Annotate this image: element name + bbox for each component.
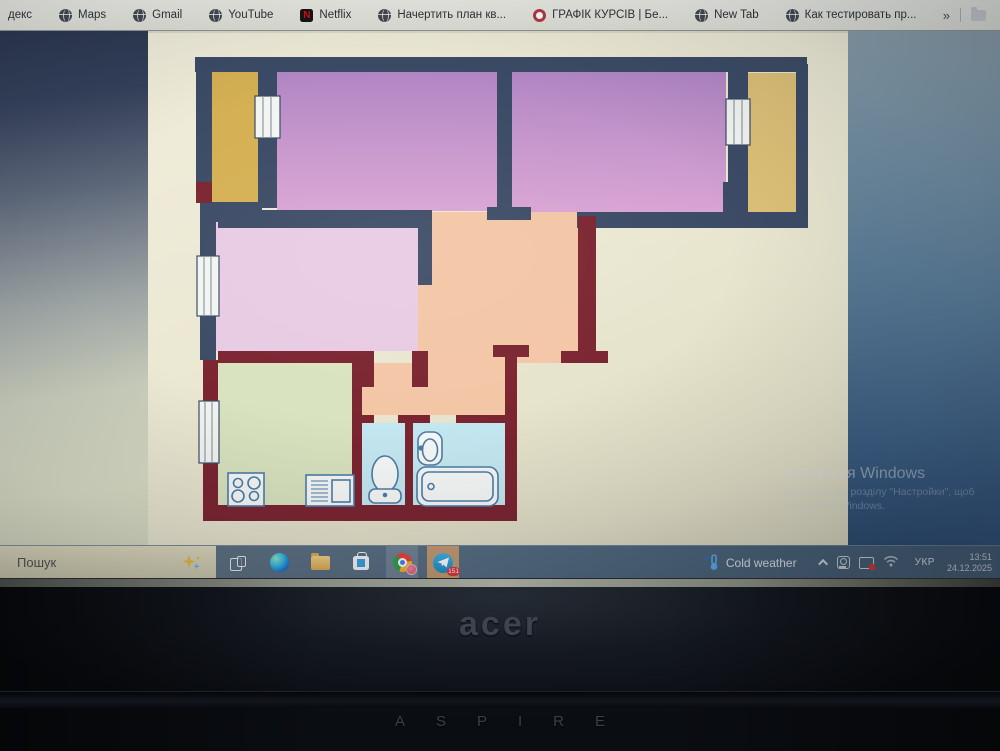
- toilet-symbol: [369, 456, 401, 503]
- clock-time: 13:51: [947, 552, 992, 563]
- page-right-background: [848, 31, 1000, 545]
- bookmark-label: Начертить план кв...: [397, 9, 506, 21]
- task-view-button[interactable]: [222, 546, 254, 579]
- microsoft-store-button[interactable]: [345, 546, 377, 579]
- room-bedroom-1: [277, 68, 498, 211]
- wifi-icon[interactable]: [883, 554, 899, 572]
- taskbar-pinned-icons: 151: [222, 546, 459, 579]
- chrome-button[interactable]: [386, 546, 418, 579]
- bookmark-item[interactable]: Gmail: [133, 9, 182, 22]
- stove-symbol: [228, 473, 264, 506]
- file-explorer-button[interactable]: [304, 546, 336, 579]
- bookmark-item[interactable]: Как тестировать пр...: [786, 9, 917, 22]
- browser-page: Активація Windows Перейдіть до розділу "…: [0, 31, 1000, 545]
- bookmark-item[interactable]: декс: [2, 9, 32, 21]
- laptop-model-text: ASPIRE: [0, 713, 1000, 730]
- taskbar-search[interactable]: Пошук: [0, 546, 216, 579]
- bookmark-label: Gmail: [152, 9, 182, 21]
- laptop-screen: декс Maps Gmail YouTube: [0, 0, 1000, 578]
- bookmarks-bar: декс Maps Gmail YouTube: [0, 0, 1000, 31]
- tray-app-icon[interactable]: [837, 556, 850, 569]
- bookmark-favicon-icon: [300, 9, 313, 22]
- bookmark-item[interactable]: New Tab: [695, 9, 759, 22]
- bookmark-item[interactable]: Netflix: [300, 9, 351, 22]
- display-capture-icon[interactable]: [859, 557, 874, 569]
- sink-symbol: [418, 432, 442, 465]
- window-symbol-kitchen: [199, 401, 219, 463]
- bathtub-symbol: [417, 467, 498, 506]
- bookmarks-list: декс Maps Gmail YouTube: [0, 0, 937, 30]
- weather-label: Cold weather: [726, 556, 797, 570]
- room-bedroom-2: [512, 68, 726, 213]
- task-view-icon: [230, 556, 246, 569]
- bookmark-favicon-icon: [209, 9, 222, 22]
- bookmark-label: Maps: [78, 9, 106, 21]
- clock-date: 24.12.2025: [947, 563, 992, 574]
- edge-icon: [270, 553, 289, 572]
- page-left-background: [0, 31, 148, 545]
- search-placeholder: Пошук: [17, 555, 180, 570]
- window-symbol-pink-room: [197, 256, 219, 316]
- bookmarks-right-controls: »: [937, 8, 1000, 23]
- floorplan-svg: [148, 33, 848, 545]
- system-tray: [821, 554, 899, 572]
- room-balcony-left: [204, 67, 258, 203]
- telegram-badge: 151: [447, 567, 460, 576]
- edge-button[interactable]: [263, 546, 295, 579]
- bookmark-favicon-icon: [133, 9, 146, 22]
- bookmark-favicon-icon: [59, 9, 72, 22]
- microsoft-store-icon: [353, 556, 369, 570]
- window-symbol-balcony-left: [255, 96, 280, 138]
- file-explorer-icon: [311, 556, 330, 570]
- language-indicator[interactable]: УКР: [915, 557, 935, 568]
- bookmark-label: New Tab: [714, 9, 759, 21]
- acer-logo: acer: [0, 605, 1000, 644]
- laptop-bezel: acer ASPIRE: [0, 587, 1000, 751]
- bookmark-label: ГРАФІК КУРСІВ | Бе...: [552, 9, 668, 21]
- screen-bottom-edge: [0, 578, 1000, 587]
- bookmarks-overflow-chevron-icon[interactable]: »: [943, 8, 950, 23]
- bookmark-label: YouTube: [228, 9, 273, 21]
- bookmark-label: Как тестировать пр...: [805, 9, 917, 21]
- floorplan-canvas[interactable]: [148, 33, 848, 545]
- window-symbol-balcony-right: [726, 99, 750, 145]
- taskbar-right: Cold weather УКР 13:: [704, 546, 1000, 579]
- bookmarks-separator: [960, 8, 961, 22]
- hidden-icons-chevron-icon[interactable]: [818, 559, 828, 569]
- bookmark-favicon-icon: [786, 9, 799, 22]
- weather-widget[interactable]: Cold weather: [704, 554, 797, 571]
- bookmark-favicon-icon: [695, 9, 708, 22]
- other-bookmarks-folder-icon[interactable]: [971, 10, 986, 21]
- copilot-sparkle-icon: [180, 554, 202, 572]
- kitchen-counter-symbol: [306, 475, 354, 506]
- clock[interactable]: 13:51 24.12.2025: [947, 552, 992, 574]
- bookmark-item[interactable]: Начертить план кв...: [378, 9, 506, 22]
- bookmark-label: Netflix: [319, 9, 351, 21]
- bookmark-item[interactable]: YouTube: [209, 9, 273, 22]
- telegram-button[interactable]: 151: [427, 546, 459, 579]
- thermometer-icon: [704, 554, 719, 571]
- laptop-hinge: [0, 691, 1000, 708]
- room-balcony-right: [748, 73, 796, 213]
- bookmark-favicon-icon: [378, 9, 391, 22]
- chrome-badge: [406, 564, 417, 575]
- bookmark-item[interactable]: Maps: [59, 9, 106, 22]
- bookmark-label: декс: [8, 9, 32, 21]
- laptop-photo: декс Maps Gmail YouTube: [0, 0, 1000, 751]
- bookmark-favicon-icon: [533, 9, 546, 22]
- room-pink: [216, 215, 418, 351]
- taskbar: Пошук: [0, 545, 1000, 578]
- bookmark-item[interactable]: ГРАФІК КУРСІВ | Бе...: [533, 9, 668, 22]
